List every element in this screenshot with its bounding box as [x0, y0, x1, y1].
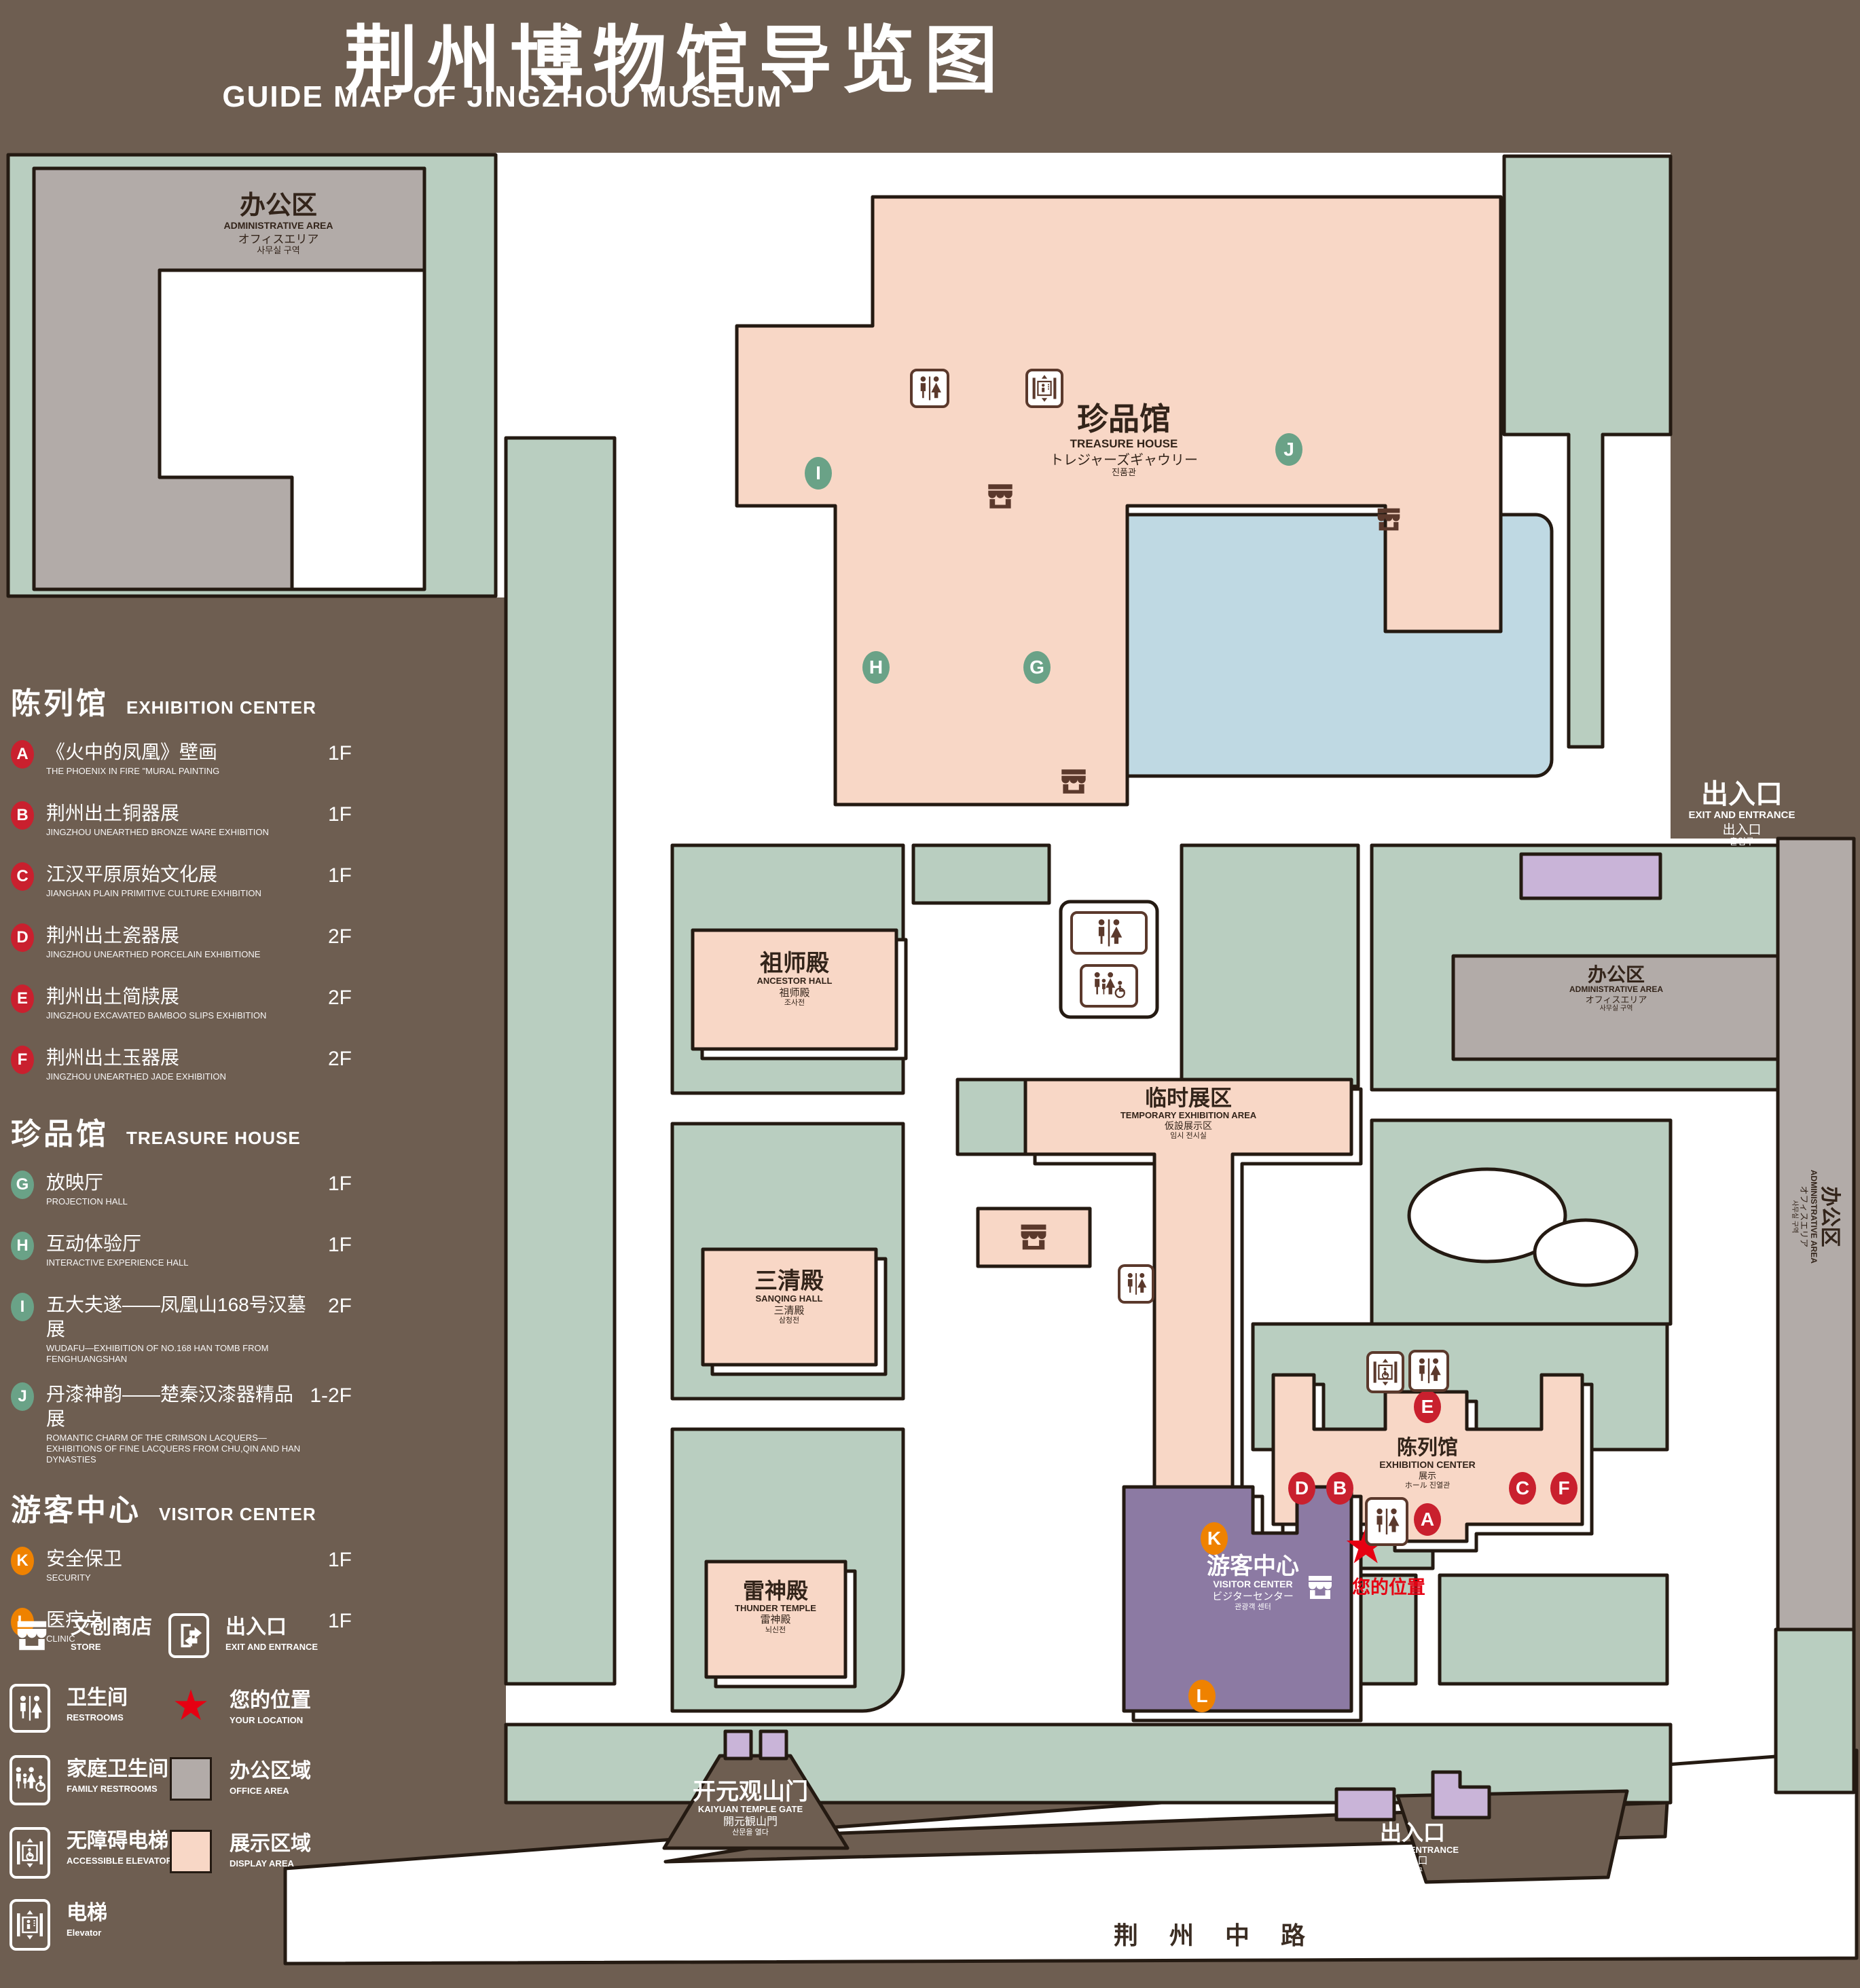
legend-item-floor: 2F	[308, 1293, 352, 1320]
legend-item-floor: 2F	[308, 984, 352, 1012]
section-title-en: EXHIBITION CENTER	[126, 697, 316, 718]
legend-section-header: 游客中心VISITOR CENTER	[11, 1486, 352, 1529]
map-marker-c[interactable]: C	[1509, 1472, 1536, 1505]
legend-your-location: ★ 您的位置YOUR LOCATION	[168, 1687, 311, 1726]
legend-marker-h: H	[11, 1232, 34, 1260]
legend-item-floor: 1F	[308, 862, 352, 889]
legend-marker-e: E	[11, 984, 34, 1013]
label-exit-top-right: 出入口 EXIT AND ENTRANCE 出入口 출입구	[1630, 779, 1854, 847]
legend-item-title: 互动体验厅	[46, 1232, 308, 1256]
legend-item-j[interactable]: J丹漆神韵——楚秦汉漆器精品展ROMANTIC CHARM OF THE CRI…	[11, 1382, 352, 1465]
legend-section: 陈列馆EXHIBITION CENTERA《火中的凤凰》壁画THE PHOENI…	[11, 679, 352, 1089]
legend-item-subtitle: JIANGHAN PLAIN PRIMITIVE CULTURE EXHIBIT…	[46, 888, 308, 899]
restrooms-icon	[1070, 911, 1148, 955]
restrooms-icon	[1118, 1264, 1154, 1304]
legend-item-title: 荆州出土铜器展	[46, 801, 308, 826]
map-marker-g[interactable]: G	[1023, 651, 1051, 684]
legend-item-subtitle: JINGZHOU UNEARTHED BRONZE WARE EXHIBITIO…	[46, 827, 308, 838]
map-marker-b[interactable]: B	[1326, 1472, 1353, 1505]
legend-item-subtitle: PROJECTION HALL	[46, 1196, 308, 1207]
legend-item-floor: 1-2F	[308, 1382, 352, 1410]
legend-office-area: 办公区域OFFICE AREA	[168, 1757, 311, 1801]
location-star-icon: ★	[168, 1687, 213, 1726]
green-strip-west	[506, 438, 615, 1684]
store-icon	[10, 1613, 54, 1658]
legend-item-title: 五大夫遂——凤凰山168号汉墓展	[46, 1293, 308, 1342]
legend-item-subtitle: ROMANTIC CHARM OF THE CRIMSON LACQUERS—E…	[46, 1433, 308, 1465]
legend-item-f[interactable]: F荆州出土玉器展JINGZHOU UNEARTHED JADE EXHIBITI…	[11, 1046, 352, 1089]
guide-map-page: 荆州博物馆导览图 GUIDE MAP OF JINGZHOU MUSEUM 办公…	[0, 0, 1860, 1988]
map-marker-h[interactable]: H	[862, 651, 890, 684]
legend-marker-b: B	[11, 801, 34, 830]
map-marker-k[interactable]: K	[1201, 1522, 1228, 1555]
accessible-elevator-icon	[10, 1827, 50, 1879]
park-pond-2	[1535, 1220, 1637, 1285]
legend-item-title: 放映厅	[46, 1171, 308, 1195]
legend-marker-j: J	[11, 1382, 34, 1411]
label-exhibition-center: 陈列馆 EXHIBITION CENTER 展示 ホール 진열관	[1326, 1437, 1529, 1490]
legend-section: 珍品馆TREASURE HOUSEG放映厅PROJECTION HALL1FH互…	[11, 1109, 352, 1465]
elevator-icon	[10, 1899, 50, 1951]
legend-item-b[interactable]: B荆州出土铜器展JINGZHOU UNEARTHED BRONZE WARE E…	[11, 801, 352, 845]
map-marker-j[interactable]: J	[1275, 433, 1302, 466]
section-title-en: VISITOR CENTER	[159, 1504, 316, 1524]
legend-marker-a: A	[11, 740, 34, 769]
map-marker-a[interactable]: A	[1414, 1503, 1441, 1536]
display-area-swatch	[170, 1830, 212, 1873]
legend-family-restrooms: 家庭卫生间FAMILY RESTROOMS	[10, 1755, 168, 1805]
legend-item-a[interactable]: A《火中的凤凰》壁画THE PHOENIX IN FIRE "MURAL PAI…	[11, 740, 352, 784]
your-location-label: 您的位置	[1321, 1572, 1457, 1599]
elevator-icon	[1025, 369, 1063, 408]
gate-pad-left	[725, 1731, 751, 1759]
legend-item-floor: 1F	[308, 1171, 352, 1198]
legend-item-floor: 1F	[308, 740, 352, 767]
restrooms-icon	[1408, 1350, 1449, 1392]
legend-item-title: 安全保卫	[46, 1547, 308, 1571]
legend-display-area: 展示区域DISPLAY AREA	[168, 1830, 311, 1873]
label-admin-mid: 办公区 ADMINISTRATIVE AREA オフィスエリア 사무실 구역	[1480, 964, 1752, 1013]
legend-item-title: 《火中的凤凰》壁画	[46, 740, 308, 765]
section-title-zh: 珍品馆	[11, 1118, 109, 1151]
family-restrooms-icon	[1080, 964, 1138, 1008]
legend-item-floor: 1F	[308, 1232, 352, 1259]
section-title-en: TREASURE HOUSE	[126, 1128, 301, 1148]
legend-panel: 陈列馆EXHIBITION CENTERA《火中的凤凰》壁画THE PHOENI…	[11, 679, 352, 1669]
legend-item-subtitle: INTERACTIVE EXPERIENCE HALL	[46, 1257, 308, 1268]
office-area-swatch	[170, 1757, 212, 1801]
legend-store: 文创商店STORE	[10, 1613, 152, 1658]
legend-marker-k: K	[11, 1547, 34, 1575]
legend-item-floor: 2F	[308, 923, 352, 951]
map-marker-i[interactable]: I	[805, 457, 832, 490]
accessible-elevator-icon	[1366, 1351, 1404, 1393]
exit-icon	[1567, 805, 1609, 851]
green-block-small-1	[958, 1080, 1025, 1154]
label-kaiyuan-gate: 开元观山门 KAIYUAN TEMPLE GATE 開元観山門 산문을 열다	[649, 1779, 852, 1837]
legend-marker-f: F	[11, 1046, 34, 1074]
exit-icon	[168, 1613, 209, 1658]
map-marker-f[interactable]: F	[1550, 1472, 1578, 1505]
label-admin-northwest: 办公区 ADMINISTRATIVE AREA オフィスエリア 사무실 구역	[136, 191, 421, 256]
legend-elevator: 电梯Elevator	[10, 1899, 107, 1951]
map-marker-e[interactable]: E	[1414, 1391, 1441, 1423]
legend-marker-g: G	[11, 1171, 34, 1199]
legend-item-title: 江汉平原原始文化展	[46, 862, 308, 887]
legend-item-c[interactable]: C江汉平原原始文化展JIANGHAN PLAIN PRIMITIVE CULTU…	[11, 862, 352, 906]
legend-item-floor: 2F	[308, 1046, 352, 1073]
legend-section-header: 珍品馆TREASURE HOUSE	[11, 1109, 352, 1153]
green-block-east-south	[1776, 1630, 1854, 1792]
label-sanqing-hall: 三清殿 SANQING HALL 三清殿 삼청전	[704, 1268, 874, 1325]
restrooms-icon	[10, 1684, 50, 1733]
legend-item-e[interactable]: E荆州出土简牍展JINGZHOU EXCAVATED BAMBOO SLIPS …	[11, 984, 352, 1028]
legend-item-g[interactable]: G放映厅PROJECTION HALL1F	[11, 1171, 352, 1214]
legend-marker-i: I	[11, 1293, 34, 1321]
entrance-pad-northeast	[1521, 854, 1660, 898]
legend-item-floor: 1F	[308, 1547, 352, 1574]
store-icon	[1304, 1571, 1336, 1607]
legend-marker-d: D	[11, 923, 34, 952]
label-admin-east-strip: 办公区 ADMINISTRATIVE AREA オフィスエリア 사무실 구역	[1791, 1081, 1841, 1352]
store-icon	[983, 479, 1017, 517]
legend-item-d[interactable]: D荆州出土瓷器展JINGZHOU UNEARTHED PORCELAIN EXH…	[11, 923, 352, 967]
section-title-zh: 游客中心	[11, 1494, 141, 1527]
legend-item-floor: 1F	[308, 801, 352, 828]
store-icon	[1373, 504, 1404, 538]
road-name: 荆 州 中 路	[1012, 1916, 1419, 1951]
legend-accessible-elevator: 无障碍电梯ACCESSIBLE ELEVATOR	[10, 1827, 172, 1879]
green-block-central	[1182, 845, 1358, 1086]
map-marker-l[interactable]: L	[1188, 1680, 1216, 1712]
label-temporary-exhibition: 临时展区 TEMPORARY EXHIBITION AREA 仮設展示区 임시 …	[1039, 1086, 1338, 1140]
green-block-exhibition-se	[1440, 1575, 1667, 1684]
legend-item-subtitle: SECURITY	[46, 1572, 308, 1583]
map-marker-d[interactable]: D	[1288, 1472, 1315, 1505]
legend-item-title: 荆州出土简牍展	[46, 984, 308, 1009]
legend-item-title: 荆州出土瓷器展	[46, 923, 308, 948]
label-thunder-temple: 雷神殿 THUNDER TEMPLE 雷神殿 뇌신전	[691, 1579, 860, 1634]
label-exit-bottom: 出入口 EXIT AND ENTRANCE 出入口 출입구	[1311, 1821, 1514, 1875]
legend-restrooms: 卫生间RESTROOMS	[10, 1684, 128, 1733]
legend-item-h[interactable]: H互动体验厅INTERACTIVE EXPERIENCE HALL1F	[11, 1232, 352, 1275]
gate-pad-right	[761, 1731, 786, 1759]
legend-item-subtitle: JINGZHOU UNEARTHED PORCELAIN EXHIBITIONE	[46, 949, 308, 960]
store-icon	[1057, 765, 1091, 802]
legend-item-subtitle: THE PHOENIX IN FIRE "MURAL PAINTING	[46, 766, 308, 777]
legend-item-title: 荆州出土玉器展	[46, 1046, 308, 1070]
restrooms-icon	[910, 369, 949, 408]
family-restrooms-icon	[10, 1755, 50, 1805]
restrooms-icon	[1365, 1497, 1408, 1546]
legend-exit: 出入口EXIT AND ENTRANCE	[168, 1613, 318, 1658]
store-icon	[1016, 1219, 1051, 1258]
legend-marker-c: C	[11, 862, 34, 891]
label-ancestor-hall: 祖师殿 ANCESTOR HALL 祖师殿 조사전	[710, 951, 879, 1008]
page-subtitle: GUIDE MAP OF JINGZHOU MUSEUM	[204, 80, 801, 114]
legend-item-subtitle: WUDAFU—EXHIBITION OF NO.168 HAN TOMB FRO…	[46, 1343, 308, 1365]
legend-item-i[interactable]: I五大夫遂——凤凰山168号汉墓展WUDAFU—EXHIBITION OF NO…	[11, 1293, 352, 1365]
section-title-zh: 陈列馆	[11, 687, 109, 720]
green-block-small-2	[913, 845, 1049, 903]
label-treasure-house: 珍品馆 TREASURE HOUSE トレジャーズギャウリー 진품관	[988, 402, 1260, 477]
legend-item-title: 丹漆神韵——楚秦汉漆器精品展	[46, 1382, 308, 1431]
legend-item-subtitle: JINGZHOU UNEARTHED JADE EXHIBITION	[46, 1071, 308, 1082]
legend-item-subtitle: JINGZHOU EXCAVATED BAMBOO SLIPS EXHIBITI…	[46, 1010, 308, 1021]
south-exit-pad-1	[1336, 1789, 1394, 1820]
legend-section-header: 陈列馆EXHIBITION CENTER	[11, 679, 352, 722]
legend-item-k[interactable]: K安全保卫SECURITY1F	[11, 1547, 352, 1590]
